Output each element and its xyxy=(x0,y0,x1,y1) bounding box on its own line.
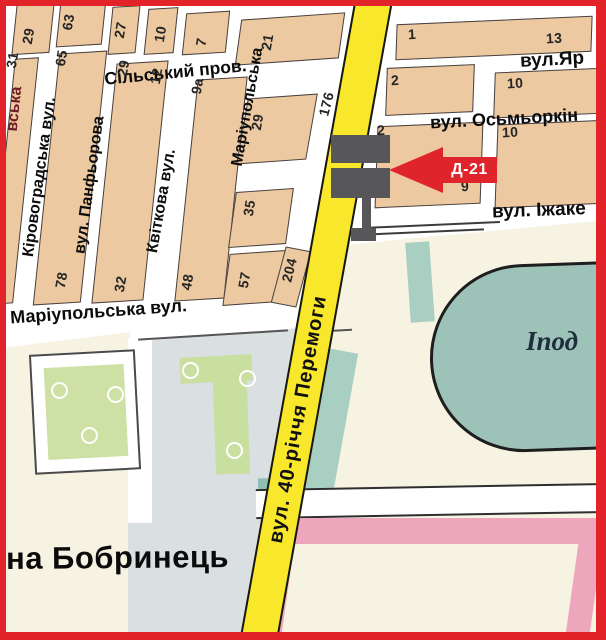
house-number: 1 xyxy=(408,26,417,42)
hippodrome-label: Іпод xyxy=(526,326,578,357)
marker-arrow-icon[interactable] xyxy=(389,147,443,193)
house-number: 10 xyxy=(507,75,524,92)
house-number: 29 xyxy=(19,27,38,46)
street-label-yar: вул.Яр xyxy=(519,45,606,73)
street-label-izhakevycha: вул. Іжаке xyxy=(492,197,606,224)
house-number: 2 xyxy=(391,72,400,88)
zone-pink-block xyxy=(248,518,606,634)
house-number: 27 xyxy=(111,21,130,40)
zone-pink-interior xyxy=(281,544,578,638)
house-number: 9а xyxy=(188,77,207,96)
house-number: 32 xyxy=(111,275,130,294)
map-frame-top xyxy=(0,0,606,6)
city-block xyxy=(228,188,294,248)
house-number: 57 xyxy=(235,271,254,290)
billboard-marker[interactable] xyxy=(331,135,391,242)
tree-icon xyxy=(81,427,98,444)
house-number: 29 xyxy=(114,59,133,78)
billboard-panel-top xyxy=(331,135,390,163)
house-number: 2 xyxy=(377,122,386,138)
direction-sign: на Бобринець xyxy=(6,539,229,577)
city-block xyxy=(182,11,230,56)
park-square xyxy=(44,364,129,460)
house-number: 63 xyxy=(59,13,78,32)
house-number: 65 xyxy=(52,49,71,68)
house-number: 78 xyxy=(52,271,71,290)
house-number: 12 xyxy=(147,67,166,86)
tree-icon xyxy=(226,442,243,459)
map-frame-bottom xyxy=(0,632,606,640)
map-frame-left xyxy=(0,0,6,640)
billboard-pole xyxy=(362,197,371,230)
billboard-base xyxy=(351,228,376,241)
billboard-panel-bottom xyxy=(331,168,390,198)
tree-icon xyxy=(107,386,124,403)
tree-icon xyxy=(51,382,68,399)
tree-icon xyxy=(239,370,256,387)
city-map: Іпод вул. 40-річчя Перемоги xyxy=(0,0,606,640)
house-number: 48 xyxy=(178,273,197,292)
house-number: 29 xyxy=(248,113,267,132)
house-number: 10 xyxy=(502,124,519,141)
house-number: 35 xyxy=(240,199,259,218)
tree-icon xyxy=(182,362,199,379)
map-frame-right xyxy=(596,0,606,640)
house-number: 10 xyxy=(151,25,170,44)
bottom-road-band xyxy=(256,483,606,519)
house-number: 21 xyxy=(258,33,277,52)
house-number: 13 xyxy=(546,30,563,47)
marker-label[interactable]: Д-21 xyxy=(442,157,497,183)
